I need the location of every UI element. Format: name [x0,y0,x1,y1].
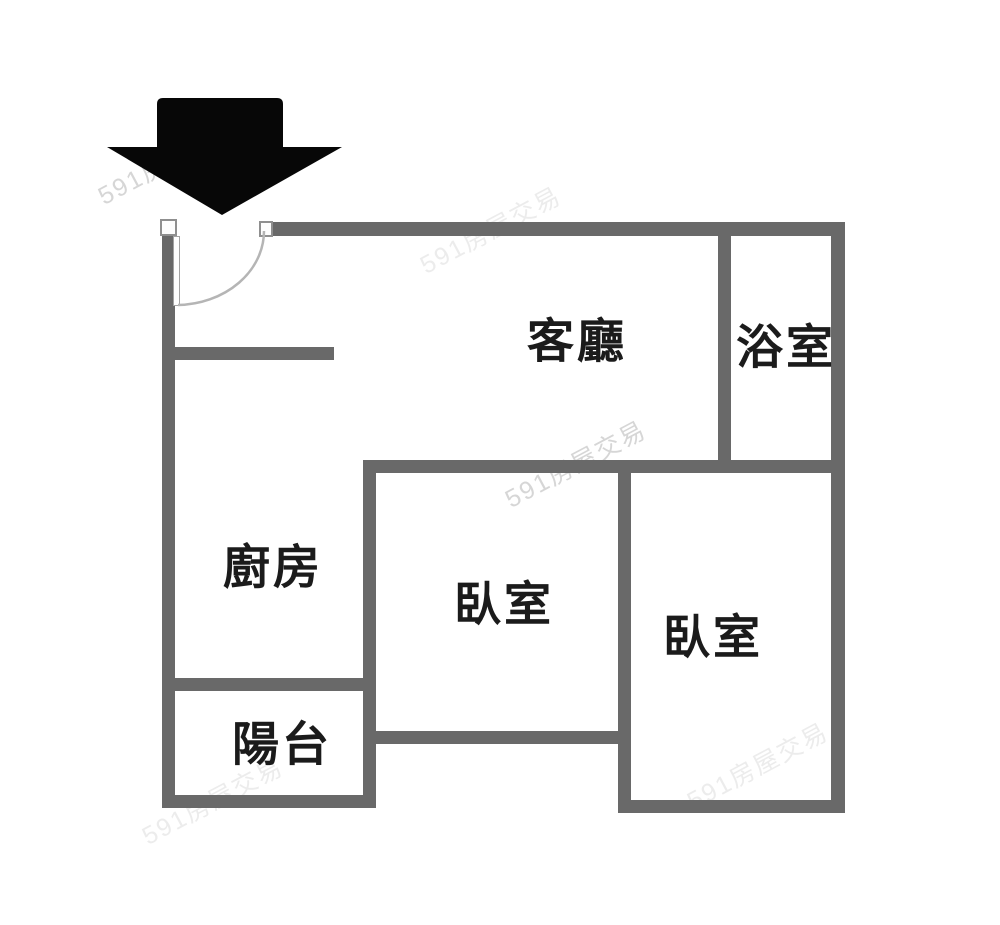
wall-mid-horizontal [363,460,845,473]
wall-bedroom2-left [618,460,631,813]
wall-bedroom1-bottom [363,731,631,744]
wall-top [263,222,845,236]
wall-livingroom-bathroom [718,232,731,473]
wall-bedroom1-left [363,460,376,807]
wall-bedroom2-bottom [618,800,845,813]
room-label-bathroom: 浴室 [736,324,836,371]
room-label-bedroom-2: 臥室 [663,614,763,661]
entrance-arrow-icon [100,90,350,225]
room-label-living-room: 客廳 [527,318,627,365]
wall-right [831,222,845,813]
entry-door-swing-icon [158,212,288,322]
room-label-bedroom-1: 臥室 [454,581,554,628]
room-label-balcony: 陽台 [232,721,332,768]
room-label-kitchen: 廚房 [223,544,323,591]
wall-kitchen-balcony [168,678,376,691]
wall-balcony-bottom [162,795,376,808]
wall-kitchen-top [170,347,334,360]
floorplan-canvas: 591房屋交易 591房屋交易 591房屋交易 591房屋交易 591房屋交易 … [0,0,1000,925]
